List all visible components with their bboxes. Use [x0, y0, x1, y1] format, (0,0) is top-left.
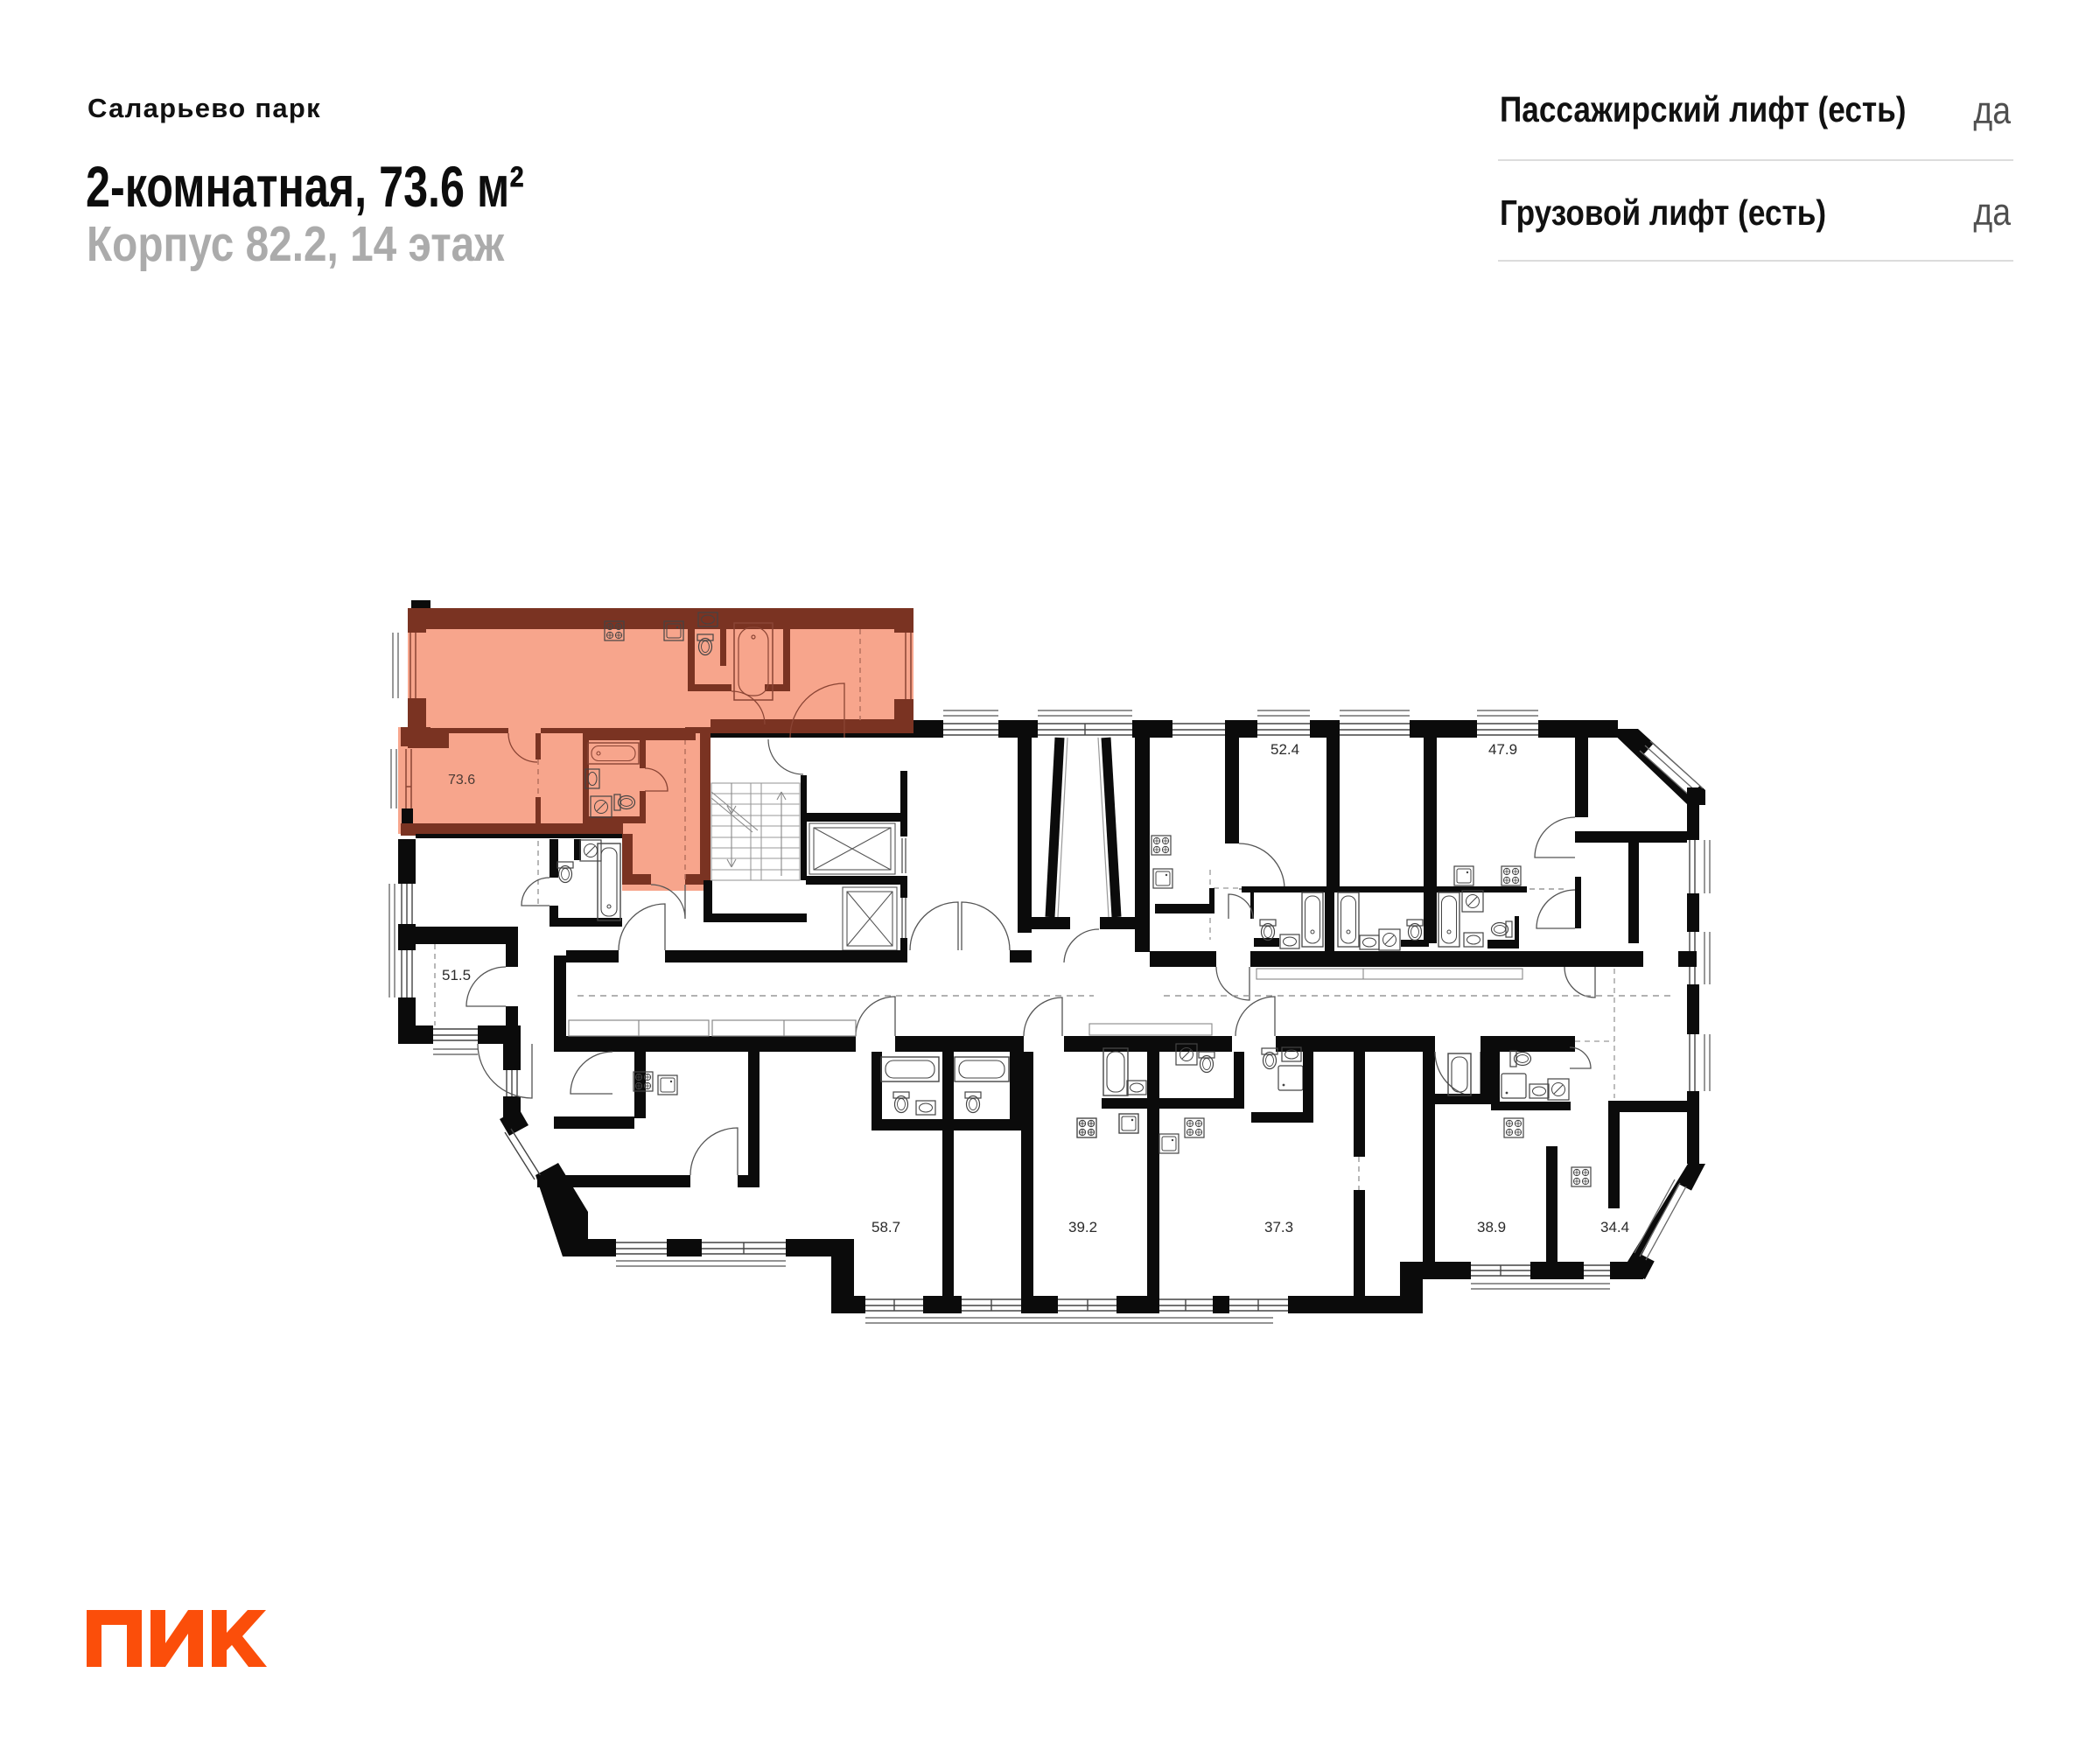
svg-text:52.4: 52.4 — [1270, 741, 1299, 758]
svg-text:47.9: 47.9 — [1488, 741, 1517, 758]
svg-text:34.4: 34.4 — [1600, 1219, 1629, 1235]
svg-text:37.3: 37.3 — [1264, 1219, 1293, 1235]
svg-text:38.9: 38.9 — [1477, 1219, 1506, 1235]
svg-text:39.2: 39.2 — [1068, 1219, 1097, 1235]
svg-text:51.5: 51.5 — [442, 967, 471, 983]
svg-text:58.7: 58.7 — [871, 1219, 900, 1235]
svg-text:73.6: 73.6 — [448, 773, 475, 787]
